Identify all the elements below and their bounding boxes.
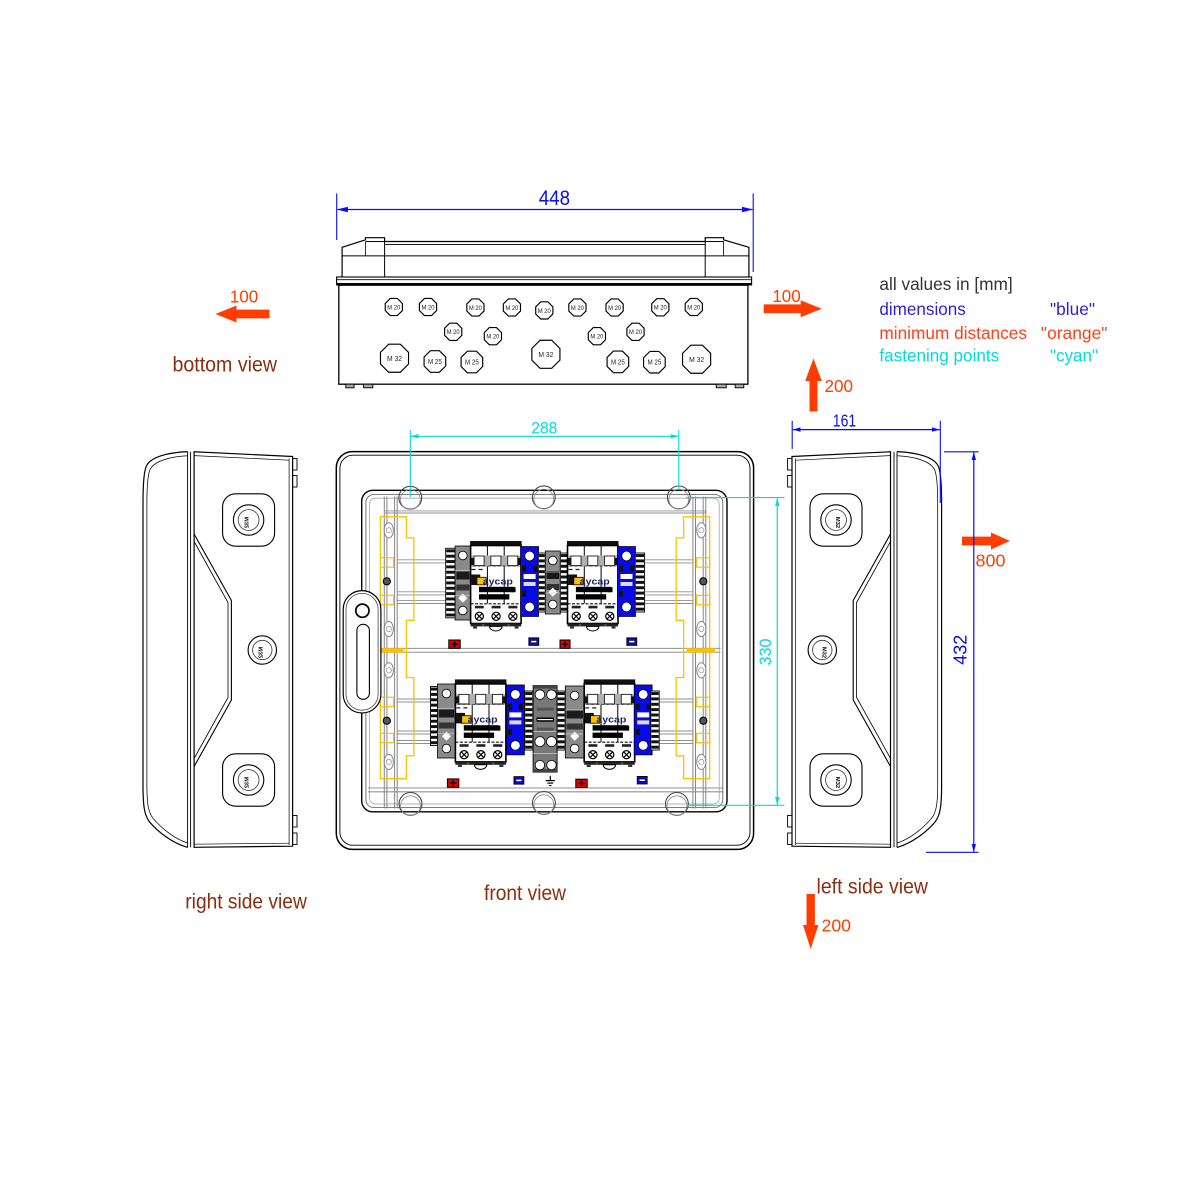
svg-text:M32: M32: [834, 777, 840, 788]
svg-text:M 20: M 20: [505, 305, 518, 312]
svg-text:448: 448: [539, 187, 570, 210]
svg-text:"orange": "orange": [1041, 323, 1108, 343]
svg-text:M 20: M 20: [469, 305, 482, 312]
svg-text:M 32: M 32: [387, 354, 402, 363]
svg-text:330: 330: [756, 639, 775, 666]
svg-text:800: 800: [976, 551, 1006, 571]
svg-text:aycap: aycap: [483, 576, 514, 586]
svg-text:M 20: M 20: [422, 304, 435, 311]
svg-text:M 20: M 20: [538, 308, 551, 315]
svg-text:dimensions: dimensions: [879, 299, 965, 319]
svg-text:M32: M32: [820, 647, 826, 658]
svg-text:M 20: M 20: [486, 334, 499, 341]
svg-text:M 20: M 20: [571, 305, 584, 312]
svg-text:M 25: M 25: [648, 360, 662, 367]
svg-text:fastening points: fastening points: [879, 346, 999, 366]
svg-text:M 25: M 25: [428, 359, 442, 366]
svg-text:100: 100: [230, 287, 258, 307]
svg-text:M 20: M 20: [590, 334, 603, 341]
svg-text:432: 432: [951, 635, 971, 665]
svg-text:M 32: M 32: [689, 355, 704, 364]
svg-text:M 25: M 25: [611, 359, 625, 366]
svg-text:M 20: M 20: [629, 329, 642, 336]
svg-text:bottom view: bottom view: [173, 352, 278, 377]
svg-text:M 20: M 20: [654, 305, 667, 312]
svg-text:aycap: aycap: [580, 576, 611, 586]
svg-text:right side view: right side view: [185, 889, 307, 914]
svg-text:200: 200: [825, 376, 854, 396]
svg-text:aycap: aycap: [596, 715, 627, 725]
svg-text:M 32: M 32: [538, 350, 553, 359]
svg-text:161: 161: [833, 411, 856, 431]
svg-text:"blue": "blue": [1050, 299, 1095, 319]
svg-text:200: 200: [822, 916, 852, 936]
svg-text:M 25: M 25: [465, 360, 479, 367]
svg-text:M32: M32: [834, 517, 840, 528]
svg-text:left side view: left side view: [817, 874, 929, 899]
svg-text:aycap: aycap: [468, 715, 499, 725]
svg-text:minimum distances: minimum distances: [879, 323, 1027, 343]
svg-text:"cyan": "cyan": [1050, 346, 1098, 366]
svg-text:M 20: M 20: [608, 305, 621, 312]
svg-text:front view: front view: [484, 880, 566, 905]
svg-text:M 20: M 20: [447, 329, 460, 336]
svg-text:all values in [mm]: all values in [mm]: [879, 274, 1012, 294]
svg-text:M 20: M 20: [687, 304, 700, 311]
svg-text:288: 288: [531, 418, 557, 437]
svg-text:100: 100: [772, 286, 800, 306]
svg-text:M 20: M 20: [387, 304, 400, 311]
